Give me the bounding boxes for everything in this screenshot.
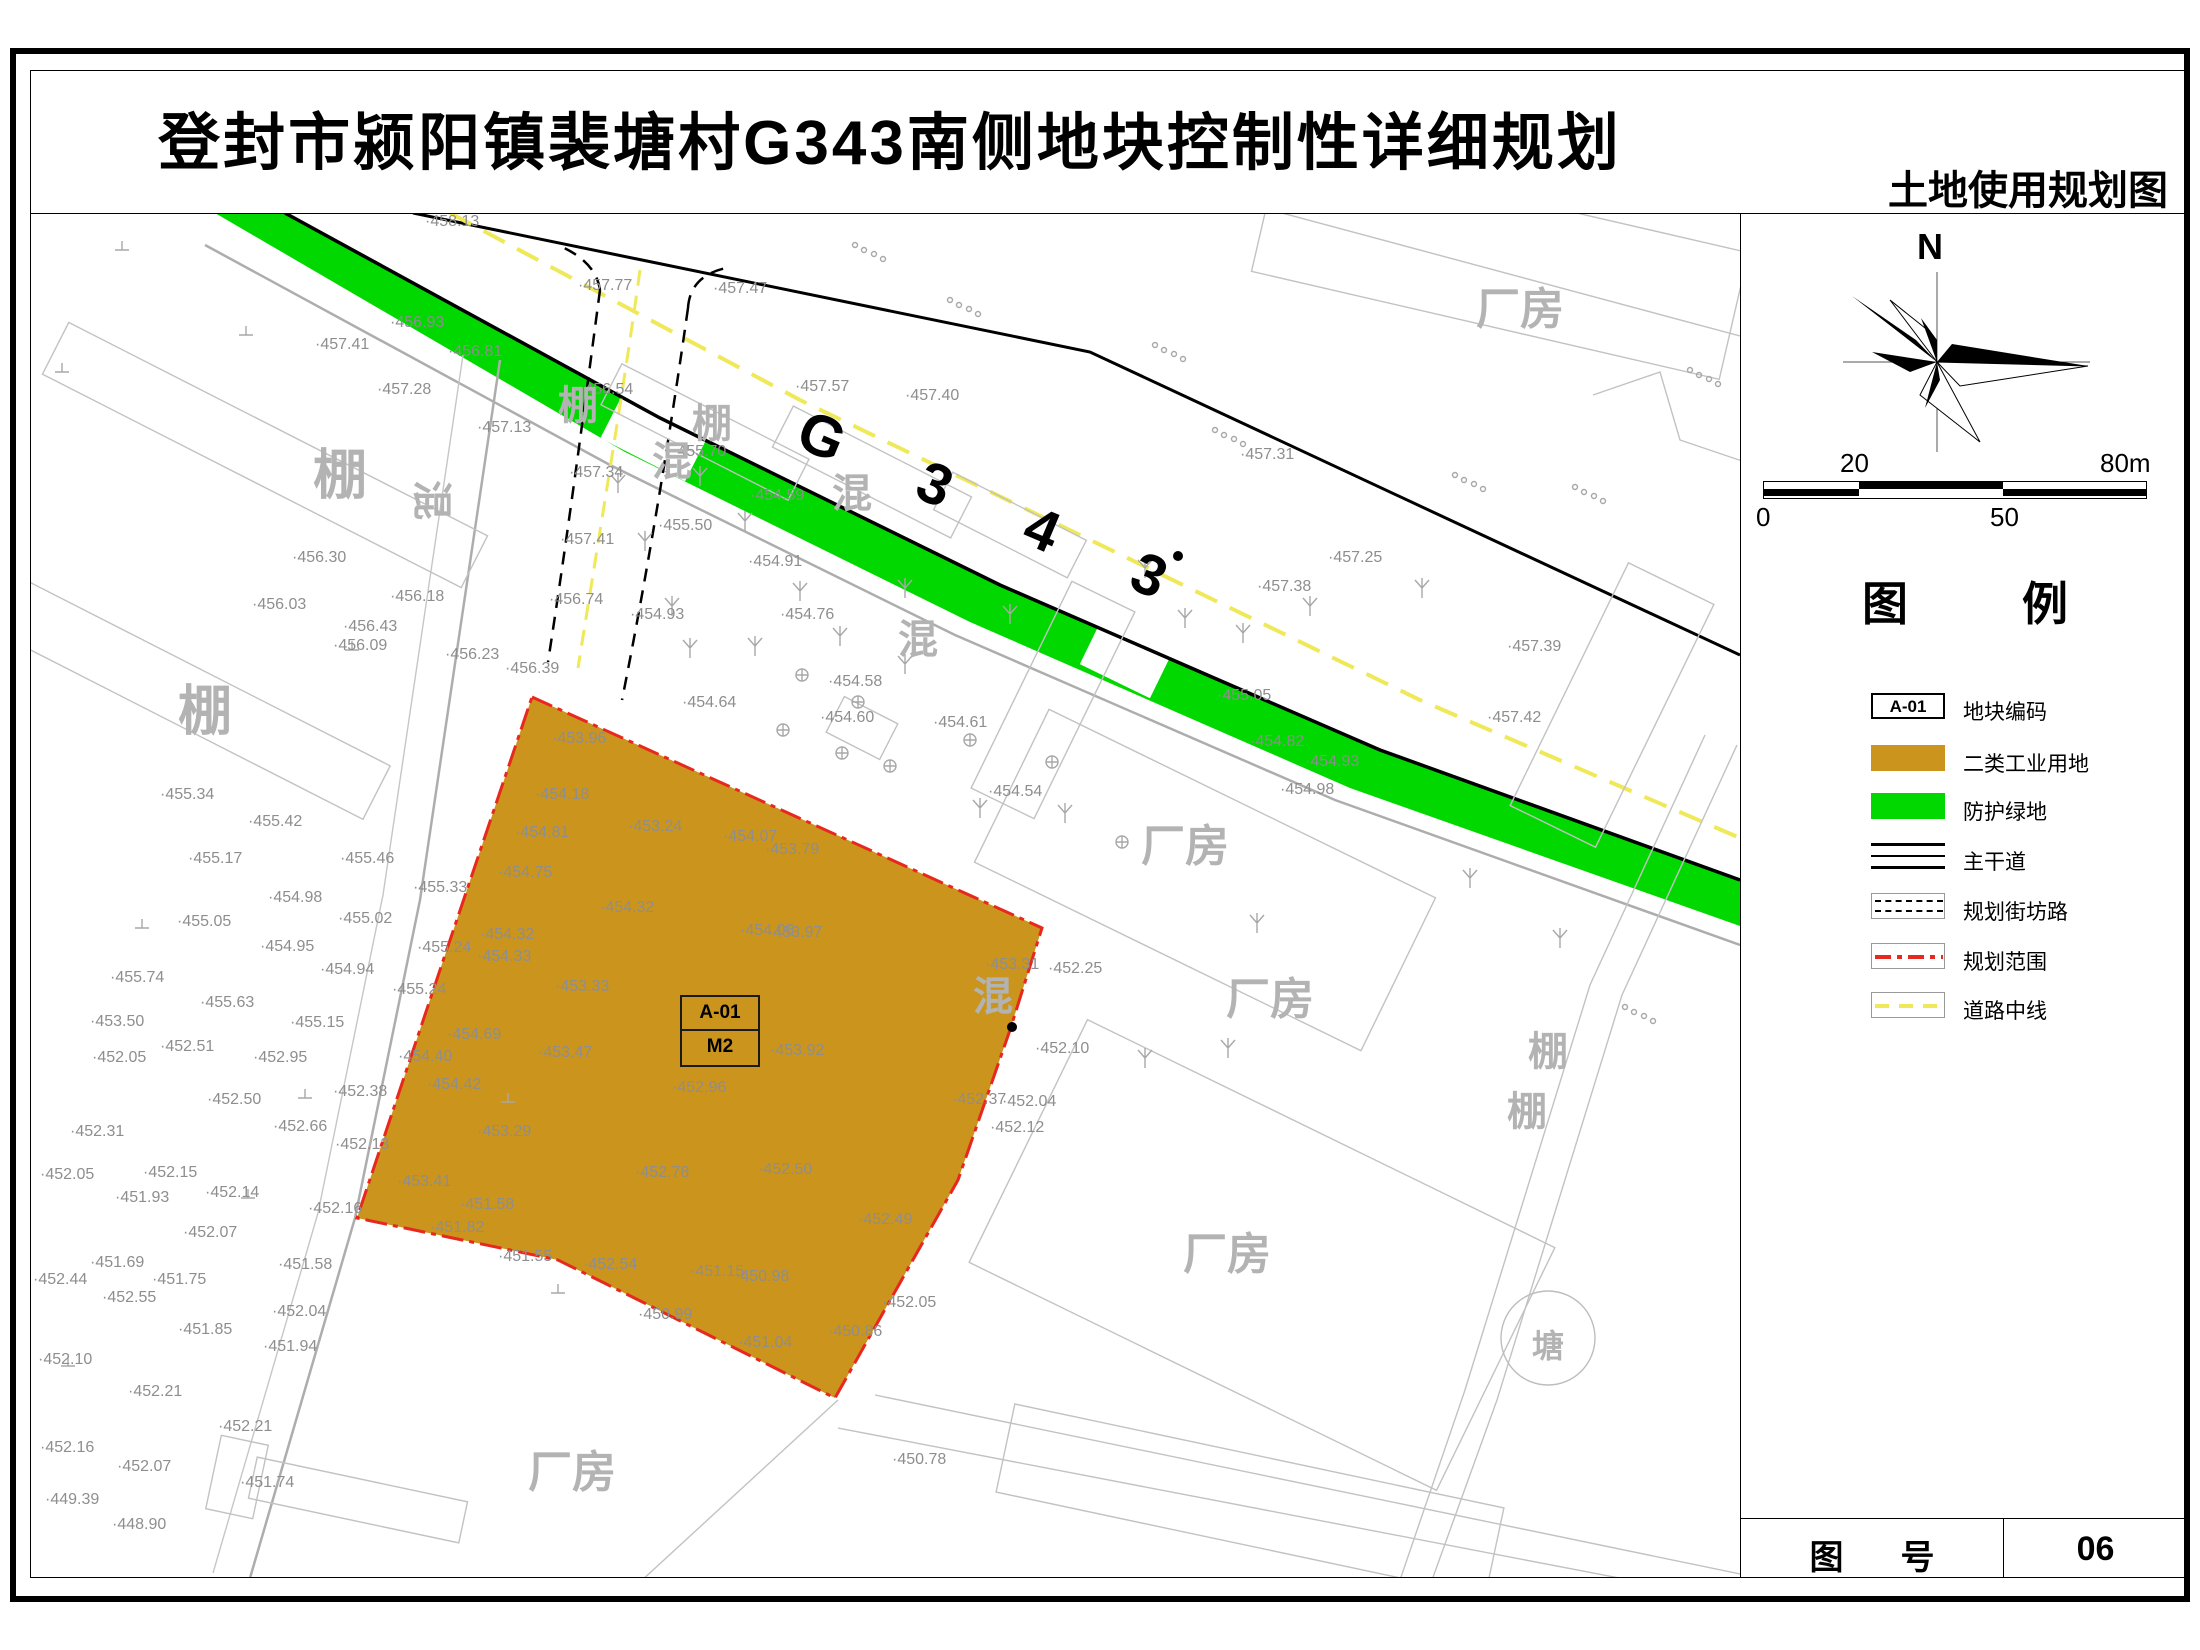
spot-elevation: ·456.81 [448,343,502,361]
area-label: 棚 [1528,1019,1568,1077]
legend-item-boundary: 规划范围 [1963,946,2047,976]
spot-elevation: ·458.13 [425,214,479,231]
spot-elevation: ·452.38 [333,1083,387,1101]
spot-elevation: ·450.98 [735,1268,789,1286]
spot-elevation: ·454.18 [535,786,589,804]
spot-elevation: ·452.78 [635,1164,689,1182]
spot-elevation: ·454.32 [480,926,534,944]
spot-elevation: ·453.47 [538,1044,592,1062]
scale-0: 0 [1756,502,1770,533]
spot-elevation: ·455.74 [110,969,164,987]
spot-elevation: ·454.75 [498,864,552,882]
spot-elevation: ·452.54 [583,1256,637,1274]
spot-elevation: ·456.23 [445,646,499,664]
spot-elevation: ·455.15 [290,1014,344,1032]
spot-elevation: ·451.85 [178,1321,232,1339]
spot-elevation: ·452.31 [70,1123,124,1141]
spot-elevation: ·457.31 [1240,446,1294,464]
spot-elevation: ·454.64 [682,694,736,712]
spot-elevation: ·448.90 [112,1516,166,1534]
map-subtitle: 土地使用规划图 [1540,158,2168,216]
spot-elevation: ·453.50 [90,1013,144,1031]
spot-elevation: ·455.33 [413,879,467,897]
spot-elevation: ·454.69 [447,1026,501,1044]
area-label: 棚 [558,373,598,431]
spot-elevation: ·452.07 [183,1224,237,1242]
spot-elevation: ·456.03 [252,596,306,614]
spot-elevation: ·457.39 [1507,638,1561,656]
legend-code-text: A-01 [1890,697,1927,716]
sheet-number-label: 图 号 [1741,1530,2003,1579]
spot-elevation: ·452.10 [38,1351,92,1369]
spot-elevation: ·454.60 [820,709,874,727]
spot-elevation: ·455.63 [200,994,254,1012]
spot-elevation: ·451.94 [263,1338,317,1356]
spot-elevation: ·452.14 [205,1184,259,1202]
spot-elevation: ·452.66 [273,1118,327,1136]
scale-bar [1763,481,2147,499]
spot-elevation: ·456.74 [549,591,603,609]
spot-elevation: ·452.95 [253,1049,307,1067]
spot-elevation: ·450.99 [638,1306,692,1324]
spot-elevation: ·456.39 [505,660,559,678]
planning-drawing: { "title": "登封市颍阳镇裴塘村G343南侧地块控制性详细规划", "… [0,0,2200,1650]
spot-elevation: ·452.50 [758,1161,812,1179]
sheet-number-value: 06 [2003,1530,2188,1569]
spot-elevation: ·454.95 [260,938,314,956]
legend-item-plot-code: 地块编码 [1963,696,2047,726]
spot-elevation: ·455.24 [392,981,446,999]
spot-elevation: ·451.93 [115,1189,169,1207]
spot-elevation: ·451.55 [498,1248,552,1266]
spot-elevation: ·454.91 [748,553,802,571]
spot-elevation: ·452.15 [143,1164,197,1182]
spot-elevation: ·451.04 [738,1334,792,1352]
spot-elevation: ·452.07 [117,1458,171,1476]
spot-elevation: ·452.16 [40,1439,94,1457]
spot-elevation: ·454.61 [933,714,987,732]
spot-elevation: ·450.86 [828,1323,882,1341]
spot-elevation: ·452.13 [335,1136,389,1154]
spot-elevation: ·456.93 [390,314,444,332]
spot-elevation: ·457.42 [1487,709,1541,727]
area-label: 厂房 [1183,1218,1271,1282]
spot-elevation: ·453.33 [555,978,609,996]
area-label: 混 [406,480,464,520]
legend-swatch-centerline [1871,992,1945,1018]
spot-elevation: ·457.57 [795,378,849,396]
spot-elevation: ·452.44 [33,1271,87,1289]
legend-swatch-boundary [1871,943,1945,969]
spot-elevation: ·452.10 [1035,1040,1089,1058]
spot-elevation: ·455.46 [340,850,394,868]
spot-elevation: ·454.76 [780,606,834,624]
spot-elevation: ·454.93 [630,606,684,624]
spot-elevation: ·454.81 [515,824,569,842]
legend-item-planned-road: 规划街坊路 [1963,896,2068,926]
spot-elevation: ·455.34 [160,786,214,804]
scale-80m: 80m [2100,448,2151,479]
spot-elevation: ·457.38 [1257,578,1311,596]
spot-elevation: ·456.43 [343,618,397,636]
spot-elevation: ·455.05 [177,913,231,931]
area-label: 厂房 [1226,963,1314,1027]
spot-elevation: ·455.24 [417,939,471,957]
spot-elevation: ·453.92 [770,1042,824,1060]
spot-elevation: ·453.79 [765,841,819,859]
area-label: 厂房 [1141,810,1229,874]
spot-elevation: ·450.78 [892,1451,946,1469]
spot-elevation: ·452.05 [92,1049,146,1067]
spot-elevation: ·452.05 [40,1166,94,1184]
panel-divider [1740,213,1741,1578]
spot-elevation: ·452.04 [1002,1093,1056,1111]
spot-elevation: ·452.21 [218,1418,272,1436]
spot-elevation: ·452.37 [952,1091,1006,1109]
spot-elevation: ·454.82 [1250,733,1304,751]
area-label: 棚 [313,431,367,510]
spot-elevation: ·452.55 [102,1289,156,1307]
spot-elevation: ·452.25 [1048,960,1102,978]
legend-swatch-planned-road [1871,893,1945,919]
spot-elevation: ·457.34 [569,464,623,482]
area-label: 棚 [1507,1079,1547,1137]
spot-elevation: ·454.32 [600,899,654,917]
plot-zone: M2 [682,1031,758,1063]
plot-code-box: A-01 M2 [680,995,760,1067]
spot-elevation: ·457.47 [713,280,767,298]
spot-elevation: ·451.69 [90,1254,144,1272]
spot-elevation: ·454.98 [1280,781,1334,799]
area-label: 厂房 [1476,273,1564,337]
spot-elevation: ·451.82 [430,1219,484,1237]
area-label: 厂房 [528,1436,616,1500]
spot-elevation: ·454.93 [1305,753,1359,771]
page-title: 登封市颍阳镇裴塘村G343南侧地块控制性详细规划 [40,92,1740,182]
area-label: 棚 [178,667,232,746]
legend-swatch-industrial [1871,745,1945,771]
spot-elevation: ·457.40 [905,387,959,405]
area-label: 混 [652,429,692,487]
spot-elevation: ·455.42 [248,813,302,831]
spot-elevation: ·452.16 [308,1200,362,1218]
legend-swatch-code: A-01 [1871,693,1945,719]
spot-elevation: ·454.59 [750,487,804,505]
spot-elevation: ·452.12 [990,1119,1044,1137]
legend-swatch-green [1871,793,1945,819]
legend-item-industrial: 二类工业用地 [1963,748,2089,778]
spot-elevation: ·454.40 [398,1048,452,1066]
spot-elevation: ·454.42 [427,1076,481,1094]
legend-swatch-main-road [1871,843,1945,869]
spot-elevation: ·451.75 [152,1271,206,1289]
scale-50: 50 [1990,502,2019,533]
legend-item-main-road: 主干道 [1963,846,2026,876]
spot-elevation: ·452.21 [128,1383,182,1401]
spot-elevation: ·451.58 [278,1256,332,1274]
scale-20: 20 [1840,448,1869,479]
spot-elevation: ·455.17 [188,850,242,868]
spot-elevation: ·449.39 [45,1491,99,1509]
area-label: 棚 [692,391,732,449]
area-label: 混 [832,461,872,519]
spot-elevation: ·456.18 [390,588,444,606]
spot-elevation: ·453.24 [628,818,682,836]
spot-elevation: ·455.05 [1217,687,1271,705]
spot-elevation: ·452.49 [858,1211,912,1229]
area-label: 混 [898,607,938,665]
spot-elevation: ·454.94 [320,961,374,979]
spot-elevation: ·454.33 [477,948,531,966]
spot-elevation: ·455.02 [338,910,392,928]
legend-title: 图 例 [1790,568,2140,634]
spot-elevation: ·451.74 [240,1474,294,1492]
spot-elevation: ·457.77 [578,277,632,295]
spot-elevation: ·456.30 [292,549,346,567]
spot-elevation: ·453.29 [477,1123,531,1141]
map-area: G 3 4 3 ·458.13·457.77·457.47·456.93·457… [31,214,1740,1578]
legend-item-green: 防护绿地 [1963,796,2047,826]
spot-elevation: ·457.41 [560,531,614,549]
area-label: 塘 [1532,1321,1564,1367]
spot-elevation: ·451.58 [460,1196,514,1214]
spot-elevation: ·453.96 [552,730,606,748]
area-label: 混 [973,964,1013,1022]
spot-elevation: ·453.41 [397,1173,451,1191]
spot-elevation: ·454.58 [828,673,882,691]
spot-elevation: ·455.50 [658,517,712,535]
spot-elevation: ·457.28 [377,381,431,399]
spot-elevation: ·452.50 [207,1091,261,1109]
sheet-row-topline [1741,1518,2188,1519]
spot-elevation: ·454.54 [988,783,1042,801]
spot-elevation: ·452.96 [672,1079,726,1097]
spot-elevation: ·457.25 [1328,549,1382,567]
spot-elevation: ·452.04 [272,1303,326,1321]
spot-elevation: ·453.97 [768,924,822,942]
plot-code: A-01 [682,997,758,1031]
spot-elevation: ·452.05 [882,1294,936,1312]
legend-item-centerline: 道路中线 [1963,995,2047,1025]
spot-elevation: ·457.13 [477,419,531,437]
spot-elevation: ·456.09 [333,637,387,655]
spot-elevation: ·454.98 [268,889,322,907]
north-label: N [1917,226,1943,268]
spot-elevation: ·452.51 [160,1038,214,1056]
spot-elevation: ·457.41 [315,336,369,354]
